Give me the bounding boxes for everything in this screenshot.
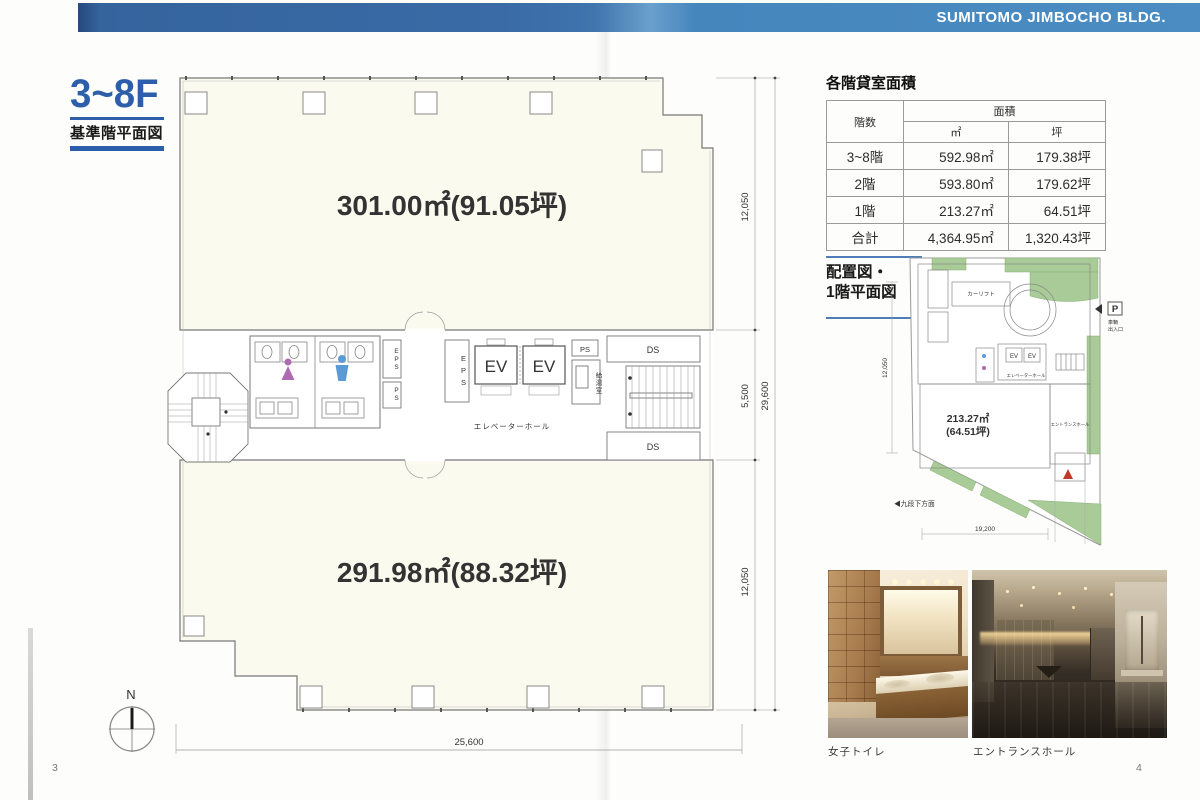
lower-area-label: 291.98㎡(88.32坪) [337, 556, 567, 588]
cell-sqm: 592.98㎡ [904, 143, 1009, 170]
area-table-title: 各階貸室面積 [826, 72, 1106, 93]
counter-ledge [1121, 670, 1163, 676]
site-ev-right-label: EV [1028, 354, 1036, 360]
vehicle-gate-label-1: 車輌 [1108, 319, 1118, 326]
cell-tsubo: 179.62坪 [1008, 170, 1105, 197]
locker-wall [828, 570, 880, 702]
site-area-sqm-label: 213.27㎡ [947, 412, 990, 425]
dim-total-depth: 29,600 [760, 381, 771, 410]
photo-caption-toilet: 女子トイレ [828, 744, 886, 759]
ps-left-label: PS [384, 384, 399, 406]
cell-floor: 2階 [827, 170, 904, 197]
duct-top-label: DS [647, 345, 660, 355]
kitchenette-label: 給湯室 [588, 363, 600, 403]
dim-width: 25,600 [454, 737, 483, 748]
cell-tsubo: 64.51坪 [1008, 197, 1105, 224]
plan-type-label: 基準階平面図 [70, 117, 164, 151]
dim-upper-depth: 12,050 [740, 192, 751, 221]
page-number-left: 3 [52, 762, 58, 774]
toilet-floor [828, 718, 968, 738]
photo-caption-entrance: エントランスホール [973, 744, 1076, 759]
ps-top-right-label: PS [580, 345, 590, 354]
dim-lower-depth: 12,050 [740, 567, 751, 596]
area-table: 階数 面積 ㎡ 坪 3~8階 592.98㎡ 179.38坪 2階 593.80… [826, 100, 1106, 251]
photo-womens-toilet [828, 570, 968, 738]
upper-area-label: 301.00㎡(91.05坪) [337, 189, 567, 221]
dim-core-depth: 5,500 [740, 384, 751, 408]
duct-bottom-label: DS [647, 442, 660, 452]
mirror [880, 586, 962, 658]
compass: N [95, 683, 171, 759]
ev-right-label: EV [533, 357, 556, 376]
vehicle-gate-label-2: 出入口 [1108, 326, 1123, 333]
col-header-floor: 階数 [827, 101, 904, 143]
car-lift-label: カーリフト [967, 291, 995, 298]
site-area-tsubo-label: (64.51坪) [946, 425, 990, 438]
col-header-area: 面積 [904, 101, 1106, 122]
elevator-hall-label: エレベーターホール [474, 422, 551, 431]
area-table-section: 各階貸室面積 階数 面積 ㎡ 坪 3~8階 592.98㎡ 179.38坪 2階… [826, 72, 1106, 251]
sink-basin [926, 672, 954, 684]
floor-plan-title-block: 3~8F 基準階平面図 [70, 74, 164, 151]
site-female-icon [982, 366, 986, 370]
site-male-icon [982, 354, 986, 358]
page-number-right: 4 [1136, 762, 1142, 774]
door-handle [1141, 616, 1143, 664]
col-header-tsubo: 坪 [1008, 122, 1105, 143]
header-bar: SUMITOMO JIMBOCHO BLDG. [78, 3, 1200, 32]
scan-edge-artifact [28, 628, 33, 800]
cell-tsubo: 179.38坪 [1008, 143, 1105, 170]
cell-floor: 合計 [827, 224, 904, 251]
cell-sqm: 4,364.95㎡ [904, 224, 1009, 251]
cell-floor: 3~8階 [827, 143, 904, 170]
parking-label: P [1112, 304, 1119, 315]
exterior-stair [168, 373, 248, 462]
table-row: 1階 213.27㎡ 64.51坪 [827, 197, 1106, 224]
eps-left-label: EPS [384, 343, 399, 377]
floor-range-label: 3~8F [70, 74, 160, 114]
table-row: 2階 593.80㎡ 179.62坪 [827, 170, 1106, 197]
table-row: 3~8階 592.98㎡ 179.38坪 [827, 143, 1106, 170]
site-elevator-hall-label: エレベーターホール [1007, 372, 1046, 379]
cell-floor: 1階 [827, 197, 904, 224]
site-dim-left: 12,050 [882, 358, 889, 378]
mirror-lights [888, 578, 958, 586]
hall-floor [972, 682, 1167, 738]
cell-sqm: 593.80㎡ [904, 170, 1009, 197]
photo-entrance-hall [972, 570, 1167, 738]
compass-north-label: N [126, 687, 135, 702]
cell-sqm: 213.27㎡ [904, 197, 1009, 224]
direction-label: ◀九段下方面 [894, 499, 935, 508]
wall-light-band [980, 632, 1100, 645]
cell-tsubo: 1,320.43坪 [1008, 224, 1105, 251]
table-row: 合計 4,364.95㎡ 1,320.43坪 [827, 224, 1106, 251]
ev-left-label: EV [485, 357, 508, 376]
site-ev-left-label: EV [1010, 354, 1018, 360]
elevator-doors [1090, 628, 1118, 680]
floor-plan-drawing: EV EV PS エレベーターホール DS DS 301.00㎡(91.05坪)… [160, 60, 800, 760]
eps-center-label: EPS [447, 344, 467, 400]
site-dim-bottom: 19,200 [975, 526, 995, 533]
toilet-block [250, 336, 380, 428]
sink-basin [884, 679, 910, 690]
col-header-sqm: ㎡ [904, 122, 1009, 143]
building-name: SUMITOMO JIMBOCHO BLDG. [936, 9, 1200, 26]
site-plan-drawing: カーリフト EV EV エレベーターホール 213.27㎡ (64.51坪) エ… [880, 248, 1180, 553]
